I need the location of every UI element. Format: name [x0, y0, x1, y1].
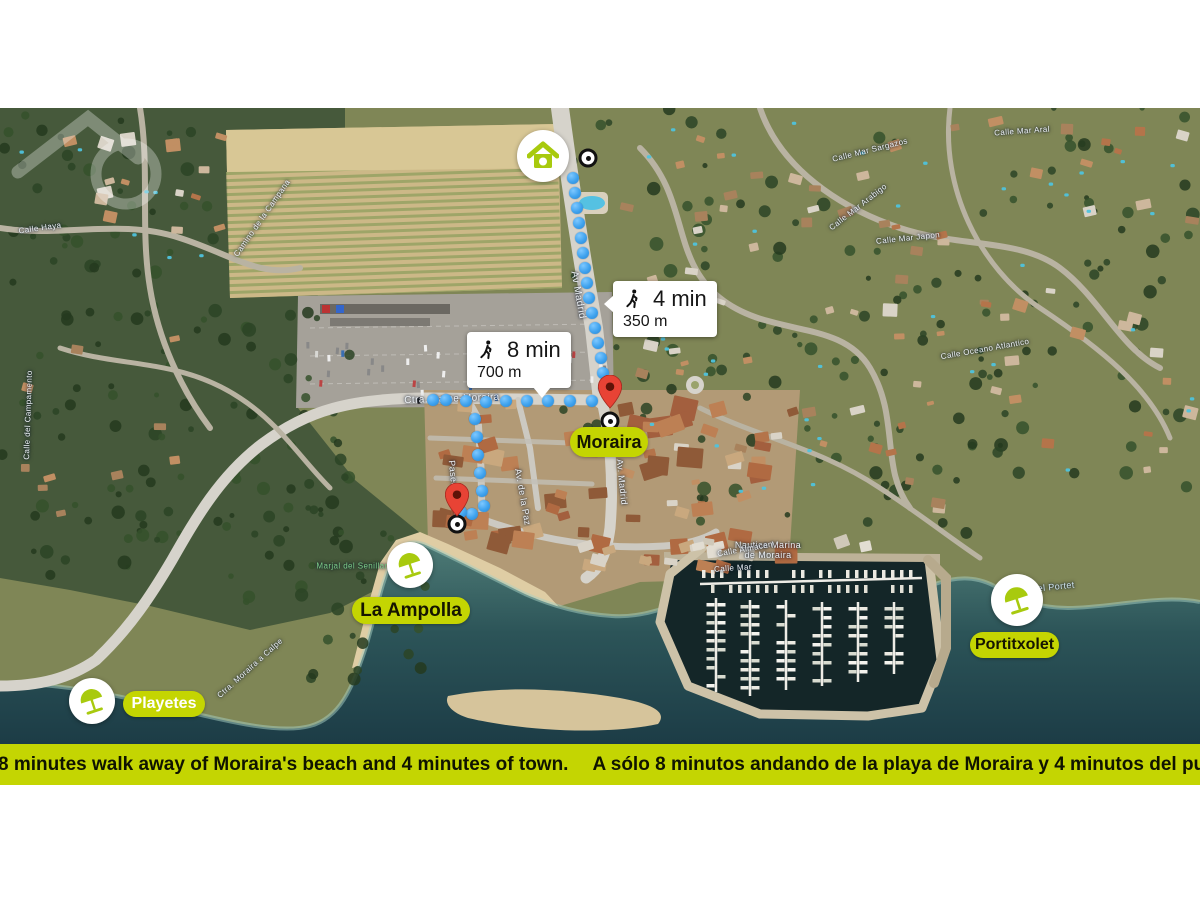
place-label-portitxolet: Portitxolet — [970, 632, 1059, 658]
route-dot-beach — [440, 394, 452, 406]
route-dot-town — [569, 187, 581, 199]
route-dot-beach — [474, 467, 486, 479]
home-icon — [517, 130, 569, 182]
street-label: Calle Mar — [714, 562, 752, 574]
walk-time-callout-town: 4 min 350 m — [613, 281, 717, 337]
route-dot-town — [571, 202, 583, 214]
logo-watermark — [8, 108, 193, 223]
route-dot-beach — [586, 395, 598, 407]
place-label-moraira: Moraira — [570, 427, 648, 457]
route-dot-town — [586, 307, 598, 319]
caption-spanish: A sólo 8 minutos andando de la playa de … — [592, 754, 1200, 776]
route-dot-beach — [521, 395, 533, 407]
callout-pointer — [604, 295, 614, 313]
map-pin-icon — [598, 375, 622, 409]
route-dot-town — [575, 232, 587, 244]
street-label: Calle Mar Aral — [994, 125, 1050, 138]
walk-time: 4 min — [653, 286, 707, 312]
street-label: Camino de la Campana — [232, 178, 292, 259]
place-label-la-ampolla: La Ampolla — [352, 597, 470, 624]
walk-distance: 350 m — [623, 313, 707, 331]
walking-person-icon — [623, 288, 643, 310]
street-label: Calle Mar Sargazos — [831, 136, 908, 163]
street-label: Nautica Marina de Moraira — [735, 540, 801, 560]
route-dot-town — [577, 247, 589, 259]
route-endpoint-icon — [579, 149, 598, 168]
route-dot-town — [592, 337, 604, 349]
route-dot-beach — [500, 395, 512, 407]
satellite-map: 4 min 350 m 8 min 700 m — [0, 108, 1200, 744]
street-label: Marjal del Senillar — [316, 562, 387, 571]
route-dot-town — [589, 322, 601, 334]
street-label: Av. de la Paz — [513, 468, 533, 526]
route-dot-town — [573, 217, 585, 229]
street-label: Av. Madrid — [615, 459, 630, 506]
route-dot-town — [595, 352, 607, 364]
route-dot-town — [567, 172, 579, 184]
route-dot-beach — [427, 394, 439, 406]
street-label: Calle Oceano Atlantico — [940, 337, 1030, 361]
route-dot-town — [581, 277, 593, 289]
route-dot-beach — [472, 449, 484, 461]
route-dot-town — [579, 262, 591, 274]
route-dot-beach — [471, 431, 483, 443]
callout-pointer — [533, 387, 551, 398]
route-dot-beach — [460, 395, 472, 407]
caption-banner: Only 8 minutes walk away of Moraira's be… — [0, 744, 1200, 785]
walking-person-icon — [477, 339, 497, 361]
route-dot-beach — [480, 396, 492, 408]
promo-map-page: 4 min 350 m 8 min 700 m — [0, 0, 1200, 900]
map-pin-icon — [445, 483, 469, 517]
route-dot-beach — [478, 500, 490, 512]
route-endpoint-icon — [448, 515, 467, 534]
route-dot-beach — [476, 485, 488, 497]
route-dot-town — [583, 292, 595, 304]
beach-umbrella-icon — [387, 542, 433, 588]
street-label: Calle del Campamento — [22, 370, 34, 460]
walk-time: 8 min — [507, 337, 561, 363]
beach-umbrella-icon — [991, 574, 1043, 626]
route-dot-beach — [564, 395, 576, 407]
street-label: Calle Mar Japon — [876, 230, 941, 246]
route-dot-beach — [469, 413, 481, 425]
walk-time-callout-beach: 8 min 700 m — [467, 332, 571, 388]
street-label: Calle Mar Arabigo — [827, 182, 888, 232]
walk-distance: 700 m — [477, 364, 561, 382]
beach-umbrella-icon — [69, 678, 115, 724]
caption-english: Only 8 minutes walk away of Moraira's be… — [0, 754, 568, 776]
place-label-playetes: Playetes — [123, 691, 205, 717]
street-label: Ctra. Moraira a Calpe — [215, 636, 284, 699]
street-label: Calle Almacen — [716, 540, 773, 559]
